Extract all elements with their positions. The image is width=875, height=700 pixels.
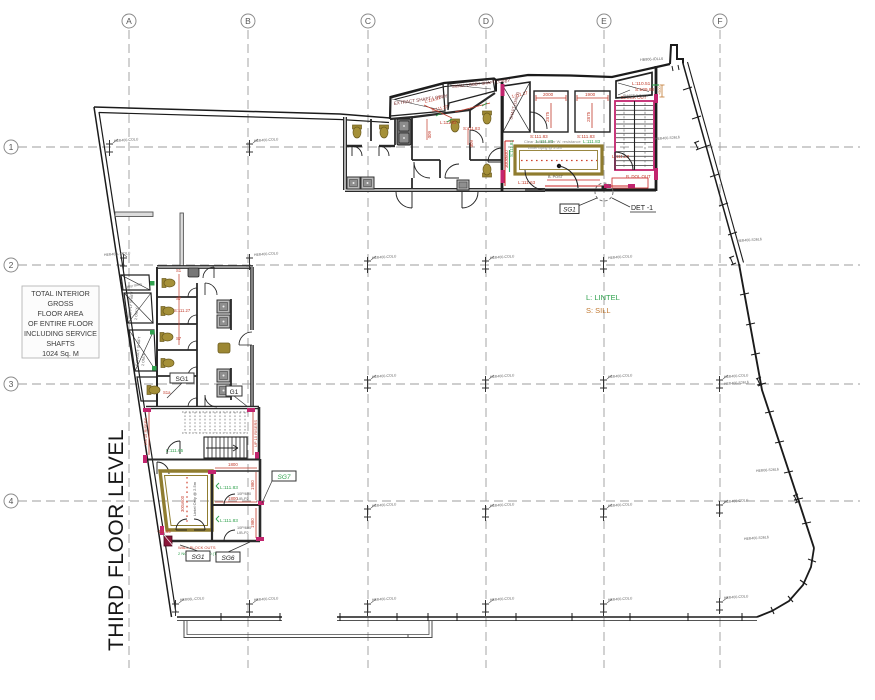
svg-text:B: B <box>245 16 251 26</box>
svg-text:G1: G1 <box>230 389 239 396</box>
svg-text:WALL BLOCK OUTS: WALL BLOCK OUTS <box>178 545 216 550</box>
svg-text:2 ONLY: 2 ONLY <box>134 307 139 320</box>
svg-text:Clear Jambs after W. resistanc: Clear Jambs after W. resistance <box>524 139 581 144</box>
svg-text:SG6: SG6 <box>221 555 234 562</box>
svg-text:2875: 2875 <box>586 111 591 122</box>
svg-text:THIRD FLOOR LEVEL: THIRD FLOOR LEVEL <box>105 429 128 651</box>
svg-text:1800: 1800 <box>228 462 238 467</box>
svg-text:1900: 1900 <box>585 92 596 97</box>
svg-text:10P/600: 10P/600 <box>237 492 251 496</box>
svg-text:-111.65: -111.65 <box>157 529 171 534</box>
svg-text:HEB400-S26L6: HEB400-S26L6 <box>744 535 769 541</box>
svg-text:S:111.27: S:111.27 <box>174 308 191 313</box>
svg-text:GROSS: GROSS <box>48 299 74 308</box>
svg-text:DN 15 RISERS: DN 15 RISERS <box>143 417 148 445</box>
svg-text:HB906-IOLL6: HB906-IOLL6 <box>640 57 663 62</box>
svg-text:grey room: grey room <box>125 282 142 289</box>
svg-text:600: 600 <box>469 140 474 148</box>
svg-text:S: SILL: S: SILL <box>586 306 611 315</box>
svg-text:E: E <box>601 16 607 26</box>
svg-text:2: 2 <box>9 260 14 270</box>
svg-text:2875: 2875 <box>545 111 550 122</box>
svg-text:L:111.83: L:111.83 <box>220 485 238 491</box>
svg-text:600: 600 <box>427 131 432 139</box>
svg-text:2000: 2000 <box>543 92 554 97</box>
svg-text:Lintel Opng @ 2.5m: Lintel Opng @ 2.5m <box>528 146 562 150</box>
svg-text:+500: +500 <box>658 86 662 95</box>
svg-text:300x600: 300x600 <box>180 495 185 512</box>
svg-text:C: C <box>365 16 371 26</box>
svg-text:B. POST: B. POST <box>548 175 564 179</box>
svg-text:HEB400-COLU: HEB400-COLU <box>114 137 139 143</box>
svg-text:HEB400-COLU: HEB400-COLU <box>372 373 397 379</box>
svg-text:SG1: SG1 <box>191 554 204 561</box>
svg-text:HEB400-COLU: HEB400-COLU <box>608 373 633 379</box>
svg-text:SHAFT 2 ONLY: SHAFT 2 ONLY <box>623 94 649 98</box>
svg-text:SUPPLY SHAFT: SUPPLY SHAFT <box>128 290 134 318</box>
svg-text:Lintel Only @ 2.5m: Lintel Only @ 2.5m <box>192 481 197 516</box>
svg-text:HEB400-COLU: HEB400-COLU <box>608 254 633 260</box>
svg-text:SHAFT (ONLY): SHAFT (ONLY) <box>508 91 520 121</box>
svg-text:2 ONLY: 2 ONLY <box>141 353 146 366</box>
svg-text:D: D <box>483 16 489 26</box>
svg-text:L:111.83: L:111.83 <box>220 518 238 524</box>
svg-text:SG1: SG1 <box>563 207 575 214</box>
svg-text:SHAFTS: SHAFTS <box>46 339 75 348</box>
svg-text:4: 4 <box>9 496 14 506</box>
svg-text:HEB400-COLU: HEB400-COLU <box>490 502 515 508</box>
svg-text:1980: 1980 <box>250 480 255 490</box>
svg-text:UP 15 RISERS: UP 15 RISERS <box>253 420 258 447</box>
svg-text:1024 Sq. M: 1024 Sq. M <box>42 349 79 358</box>
svg-text:SG1: SG1 <box>175 376 188 383</box>
svg-text:LIB-P2: LIB-P2 <box>237 531 249 535</box>
svg-text:HEB400-COLU: HEB400-COLU <box>372 254 397 260</box>
svg-text:HEB400-COLU: HEB400-COLU <box>608 502 633 508</box>
svg-text:INCLUDING SERVICE: INCLUDING SERVICE <box>24 329 97 338</box>
svg-text:L:111.83: L:111.83 <box>583 139 601 144</box>
svg-text:SG7: SG7 <box>277 474 290 481</box>
svg-text:HEB400-COLU: HEB400-COLU <box>254 251 279 257</box>
svg-text:L:110.51: L:110.51 <box>632 81 651 87</box>
svg-text:3: 3 <box>9 379 14 389</box>
svg-text:S:111.83: S:111.83 <box>509 140 514 157</box>
svg-text:A: A <box>126 16 132 26</box>
svg-text:10P/600: 10P/600 <box>237 526 251 530</box>
svg-text:S:111.83: S:111.83 <box>463 126 480 131</box>
svg-text:LIB-P2: LIB-P2 <box>237 497 249 501</box>
svg-text:L:111.65: L:111.65 <box>166 448 184 453</box>
svg-text:HEB400-COLU: HEB400-COLU <box>254 137 279 143</box>
svg-text:S:109.80: S:109.80 <box>635 87 655 93</box>
svg-text:L:111.63: L:111.63 <box>518 180 536 185</box>
svg-text:TOTAL INTERIOR: TOTAL INTERIOR <box>31 289 90 298</box>
svg-text:OF ENTIRE FLOOR: OF ENTIRE FLOOR <box>28 319 93 328</box>
svg-text:F: F <box>717 16 722 26</box>
svg-text:L: LINTEL: L: LINTEL <box>586 293 620 302</box>
svg-text:HEB400-COLU: HEB400-COLU <box>724 373 749 379</box>
svg-text:HEB400-S26L6: HEB400-S26L6 <box>737 237 762 243</box>
svg-text:HEB400-COLU: HEB400-COLU <box>724 498 749 504</box>
svg-text:HEB400-S26L6: HEB400-S26L6 <box>724 380 749 386</box>
svg-text:FLOOR AREA: FLOOR AREA <box>38 309 84 318</box>
svg-text:HEB400-S26L6: HEB400-S26L6 <box>655 135 680 141</box>
svg-text:HEB06-S26L6: HEB06-S26L6 <box>756 467 779 473</box>
svg-text:HEB400-COLU: HEB400-COLU <box>490 373 515 379</box>
svg-text:S1a: S1a <box>163 390 171 395</box>
svg-text:HEB400-COLU: HEB400-COLU <box>490 254 515 260</box>
svg-text:HEB400-COLU: HEB400-COLU <box>372 502 397 508</box>
svg-text:S1: S1 <box>176 268 182 273</box>
svg-text:1: 1 <box>9 142 14 152</box>
svg-text:DET -1: DET -1 <box>631 205 653 212</box>
